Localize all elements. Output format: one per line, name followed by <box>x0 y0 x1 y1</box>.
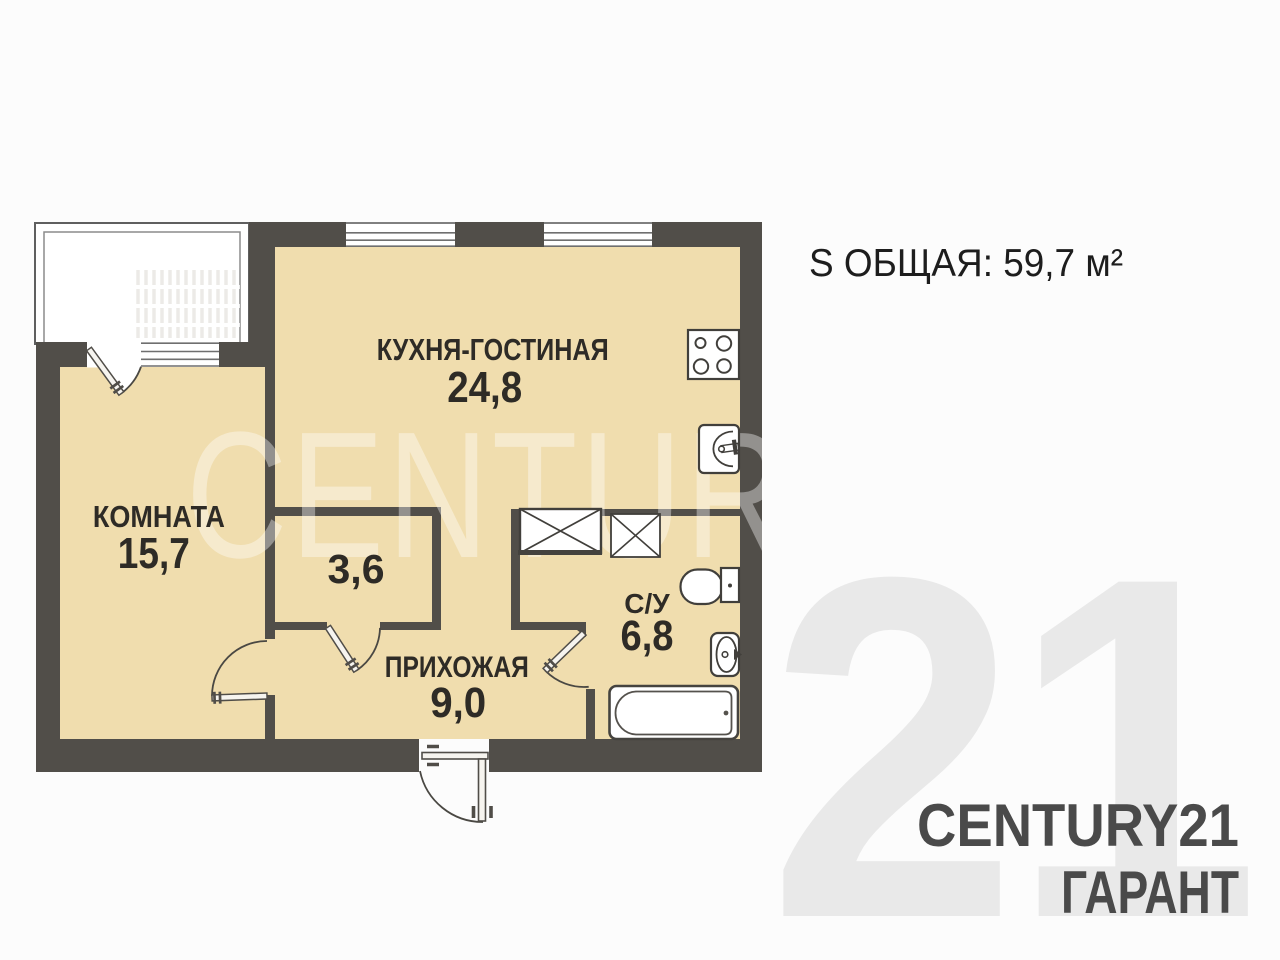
svg-text:CENTURY21: CENTURY21 <box>917 792 1239 859</box>
svg-text:S ОБЩАЯ: 59,7 м²: S ОБЩАЯ: 59,7 м² <box>809 242 1123 285</box>
svg-text:ГАРАНТ: ГАРАНТ <box>1061 859 1239 926</box>
svg-text:24,8: 24,8 <box>447 363 522 412</box>
svg-text:КУХНЯ-ГОСТИНАЯ: КУХНЯ-ГОСТИНАЯ <box>377 332 609 367</box>
svg-text:9,0: 9,0 <box>430 679 486 727</box>
svg-text:15,7: 15,7 <box>118 529 190 578</box>
svg-text:6,8: 6,8 <box>621 612 674 660</box>
svg-text:3,6: 3,6 <box>328 546 385 592</box>
